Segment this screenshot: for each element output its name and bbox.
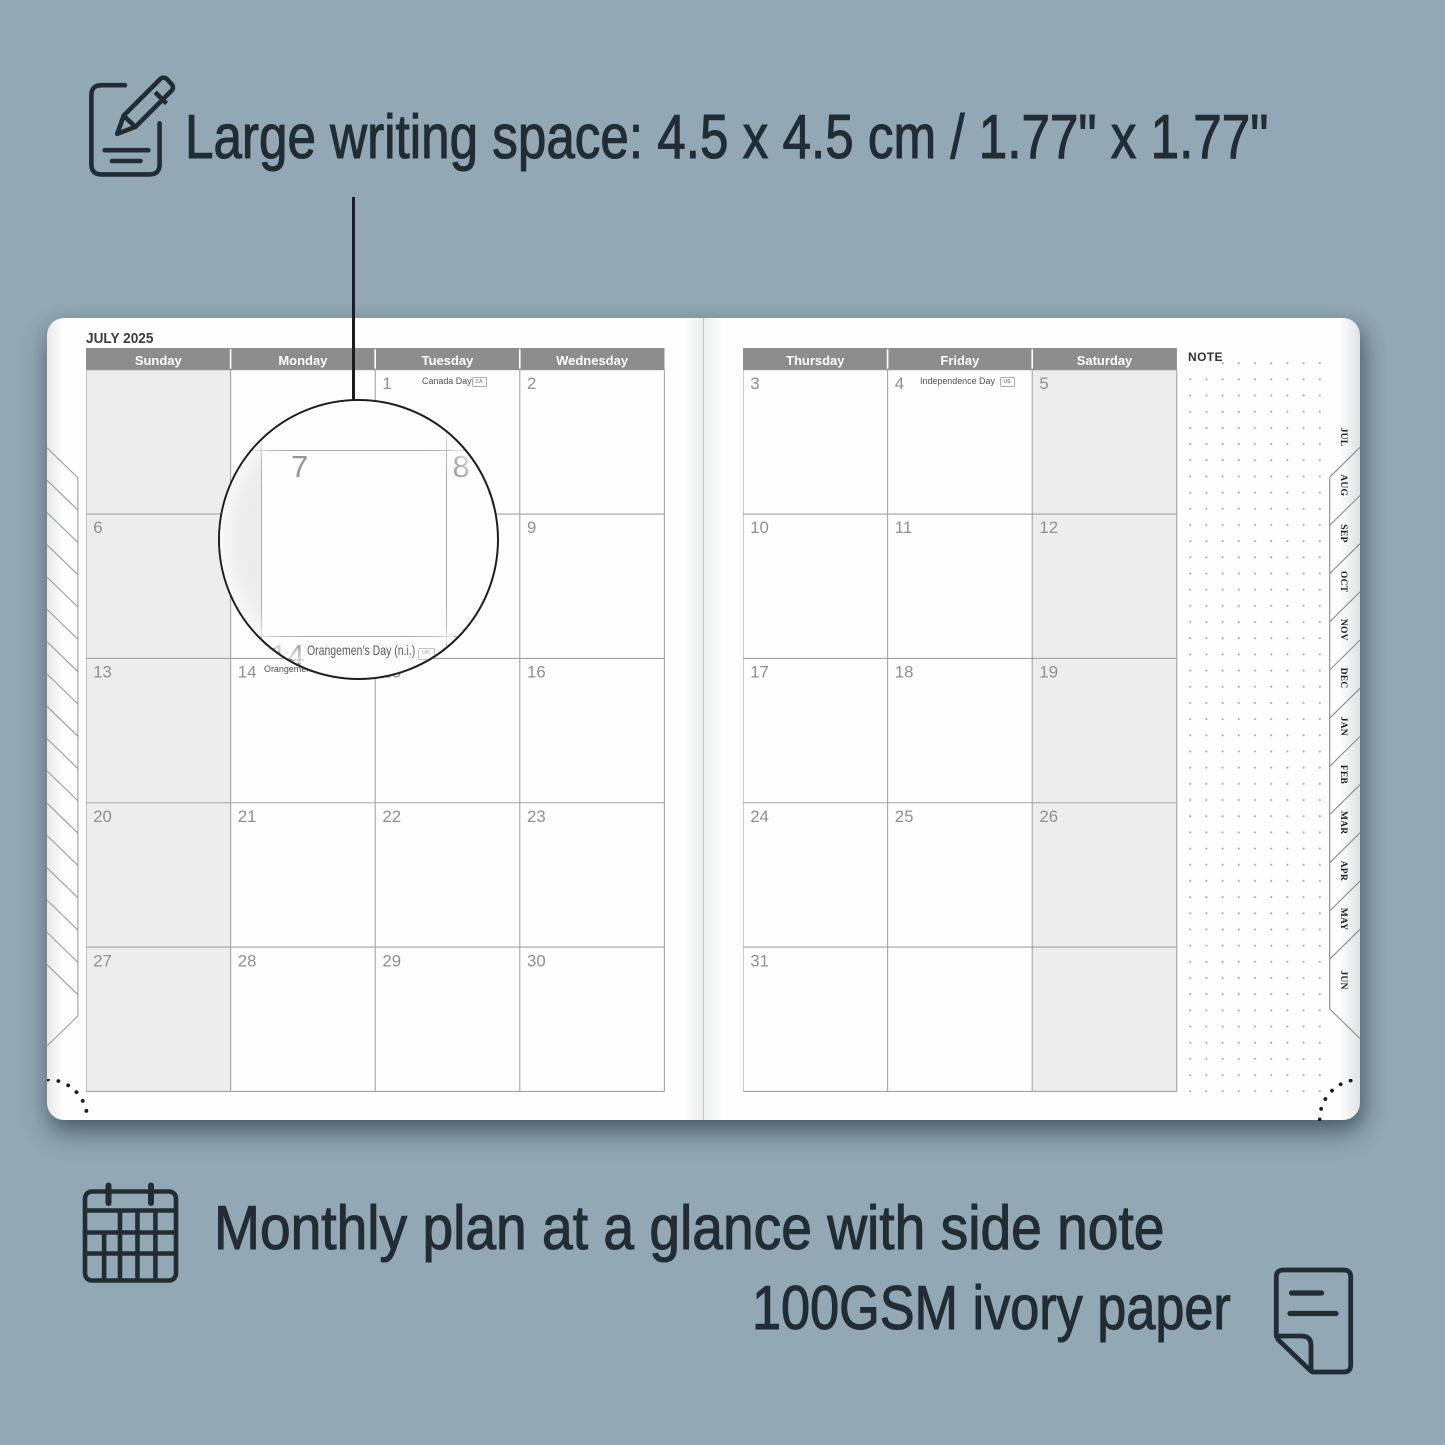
svg-text:DEC: DEC <box>1338 668 1349 689</box>
svg-text:25: 25 <box>895 807 914 826</box>
svg-text:19: 19 <box>1039 663 1058 682</box>
svg-text:13: 13 <box>93 663 112 682</box>
svg-text:26: 26 <box>1039 807 1058 826</box>
svg-text:22: 22 <box>382 807 401 826</box>
svg-text:AUG: AUG <box>1338 474 1349 496</box>
svg-text:6: 6 <box>93 518 102 537</box>
svg-text:4: 4 <box>895 374 904 393</box>
svg-text:NOV: NOV <box>1338 619 1349 641</box>
svg-text:JUL: JUL <box>1338 428 1349 447</box>
svg-text:17: 17 <box>750 663 769 682</box>
svg-text:9: 9 <box>527 518 536 537</box>
svg-text:29: 29 <box>382 952 401 971</box>
svg-text:27: 27 <box>93 952 112 971</box>
svg-text:SEP: SEP <box>1338 524 1349 542</box>
svg-text:24: 24 <box>750 807 769 826</box>
svg-text:Saturday: Saturday <box>1077 353 1133 368</box>
svg-text:5: 5 <box>1039 374 1048 393</box>
svg-text:21: 21 <box>238 807 257 826</box>
svg-text:Tuesday: Tuesday <box>422 353 474 368</box>
svg-text:16: 16 <box>527 663 546 682</box>
svg-text:1: 1 <box>382 374 391 393</box>
svg-text:30: 30 <box>527 952 546 971</box>
svg-text:20: 20 <box>93 807 112 826</box>
svg-text:12: 12 <box>1039 518 1058 537</box>
svg-text:APR: APR <box>1338 861 1349 882</box>
svg-text:FEB: FEB <box>1338 765 1349 785</box>
svg-text:JUN: JUN <box>1338 970 1349 989</box>
svg-text:MAR: MAR <box>1338 811 1349 835</box>
svg-text:Monday: Monday <box>278 353 328 368</box>
svg-text:23: 23 <box>527 807 546 826</box>
svg-text:11: 11 <box>895 518 912 537</box>
svg-text:28: 28 <box>238 952 257 971</box>
svg-text:3: 3 <box>750 374 759 393</box>
svg-text:JAN: JAN <box>1338 717 1349 736</box>
svg-text:MAY: MAY <box>1338 908 1349 931</box>
svg-text:Thursday: Thursday <box>786 353 845 368</box>
svg-text:2: 2 <box>527 374 536 393</box>
svg-text:Sunday: Sunday <box>135 353 183 368</box>
svg-text:31: 31 <box>750 952 769 971</box>
svg-text:OCT: OCT <box>1338 571 1349 593</box>
svg-text:10: 10 <box>750 518 769 537</box>
svg-text:Friday: Friday <box>940 353 980 368</box>
svg-text:18: 18 <box>895 663 914 682</box>
svg-text:Wednesday: Wednesday <box>556 353 629 368</box>
